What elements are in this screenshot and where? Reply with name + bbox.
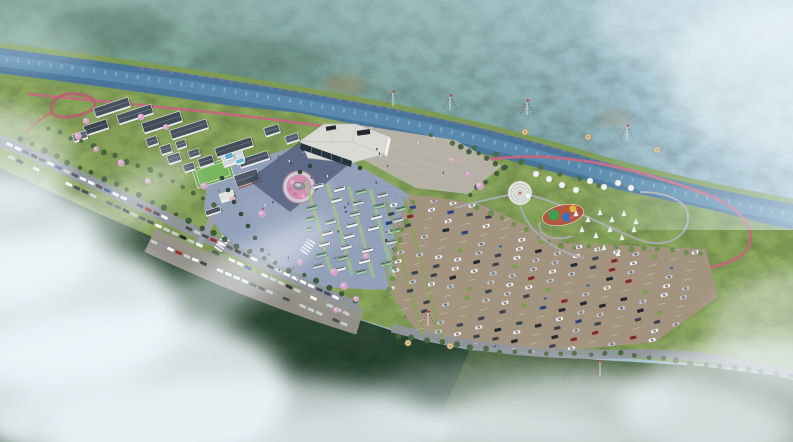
tree <box>476 151 480 155</box>
tree <box>558 351 563 356</box>
pedestrian <box>433 137 434 139</box>
tree <box>439 339 445 345</box>
tree <box>472 145 477 150</box>
conifer-tree <box>358 166 363 171</box>
tree <box>69 136 73 140</box>
tree <box>670 247 675 252</box>
tree <box>500 216 505 221</box>
shrub <box>457 249 464 253</box>
conifer-tree <box>253 236 258 241</box>
tree <box>632 353 637 358</box>
tree <box>211 230 217 236</box>
tree <box>483 346 489 352</box>
tree <box>619 350 623 354</box>
shrub <box>537 240 544 244</box>
tree <box>450 140 455 145</box>
conifer-tree <box>220 176 225 181</box>
tree <box>558 243 564 249</box>
tree <box>408 335 414 341</box>
dome-tent <box>525 193 531 199</box>
shrub <box>656 311 663 315</box>
tree <box>641 245 647 251</box>
tree <box>199 226 205 232</box>
tree <box>339 291 344 296</box>
tree <box>572 246 576 250</box>
tree <box>468 193 472 197</box>
conifer-tree <box>298 170 303 175</box>
tree <box>234 244 240 250</box>
tree <box>112 153 117 158</box>
tree <box>135 163 140 168</box>
tree <box>392 256 397 261</box>
dome-tent <box>559 182 565 188</box>
shrub <box>466 287 473 291</box>
tree <box>89 170 94 175</box>
tree <box>79 139 83 143</box>
tree <box>429 133 433 137</box>
tree <box>390 276 395 281</box>
pedestrian <box>418 141 419 143</box>
tree <box>511 222 516 227</box>
tree <box>458 144 464 150</box>
tree <box>101 176 107 182</box>
tree <box>410 199 415 204</box>
tree <box>222 236 228 242</box>
pedestrian <box>273 201 274 203</box>
tree <box>313 278 319 284</box>
conifer-tree <box>239 212 244 217</box>
tree <box>211 202 216 207</box>
shrub <box>511 265 518 269</box>
pedestrian <box>289 160 290 162</box>
tree <box>494 171 499 176</box>
pedestrian <box>218 190 219 192</box>
tree <box>474 205 480 211</box>
shrub <box>651 255 658 259</box>
tree <box>502 164 508 170</box>
tree <box>466 344 473 351</box>
tree <box>518 160 523 165</box>
pedestrian <box>376 181 377 183</box>
pedestrian <box>327 175 328 177</box>
conifer-tree <box>246 224 251 229</box>
tree <box>524 227 529 232</box>
tree <box>326 285 332 291</box>
shrub <box>521 303 528 307</box>
tree <box>628 246 634 252</box>
grazing-animal <box>316 337 318 338</box>
tree <box>538 165 543 170</box>
tree <box>161 204 167 210</box>
tree <box>698 251 703 256</box>
tree <box>589 353 593 357</box>
tree <box>544 352 549 357</box>
tree <box>180 185 185 190</box>
shrub <box>464 296 471 300</box>
tree <box>302 273 306 277</box>
tree <box>493 161 498 166</box>
dome-tent <box>546 176 552 182</box>
tree <box>403 219 409 225</box>
tree <box>614 245 619 250</box>
tree <box>424 337 430 343</box>
tree <box>498 350 502 354</box>
tree <box>483 180 488 185</box>
tree <box>655 246 660 251</box>
tree <box>684 250 689 255</box>
dome-tent <box>573 187 579 193</box>
tree <box>466 149 472 155</box>
conifer-tree <box>308 164 313 169</box>
tree <box>528 349 532 353</box>
tree <box>185 217 191 223</box>
tree <box>392 266 396 270</box>
tree <box>572 351 577 356</box>
tree <box>647 355 652 360</box>
tree <box>78 165 83 170</box>
grazing-animal <box>369 346 371 347</box>
conifer-tree <box>226 188 231 193</box>
tree <box>174 212 178 216</box>
tree <box>101 149 107 155</box>
scene-root <box>0 0 793 442</box>
grazing-animal <box>340 351 342 352</box>
tree <box>484 156 489 161</box>
tree <box>602 351 607 356</box>
tree <box>386 287 391 292</box>
conifer-tree <box>232 200 237 205</box>
tree <box>191 191 196 196</box>
tree <box>397 237 403 243</box>
tree <box>586 244 591 249</box>
shrub <box>642 291 649 295</box>
tree <box>493 152 499 158</box>
grazing-animal <box>356 342 358 343</box>
tree <box>393 249 397 253</box>
tree <box>399 227 404 232</box>
dome-tent <box>533 171 539 177</box>
aerial-rendering-stage <box>0 0 793 442</box>
shrub <box>544 288 551 292</box>
grazing-animal <box>382 349 384 350</box>
tree <box>557 172 562 177</box>
tree <box>407 208 412 213</box>
tree <box>201 196 205 200</box>
tree <box>454 341 460 347</box>
tree <box>512 350 517 355</box>
tree <box>488 210 494 216</box>
tree <box>396 334 401 339</box>
